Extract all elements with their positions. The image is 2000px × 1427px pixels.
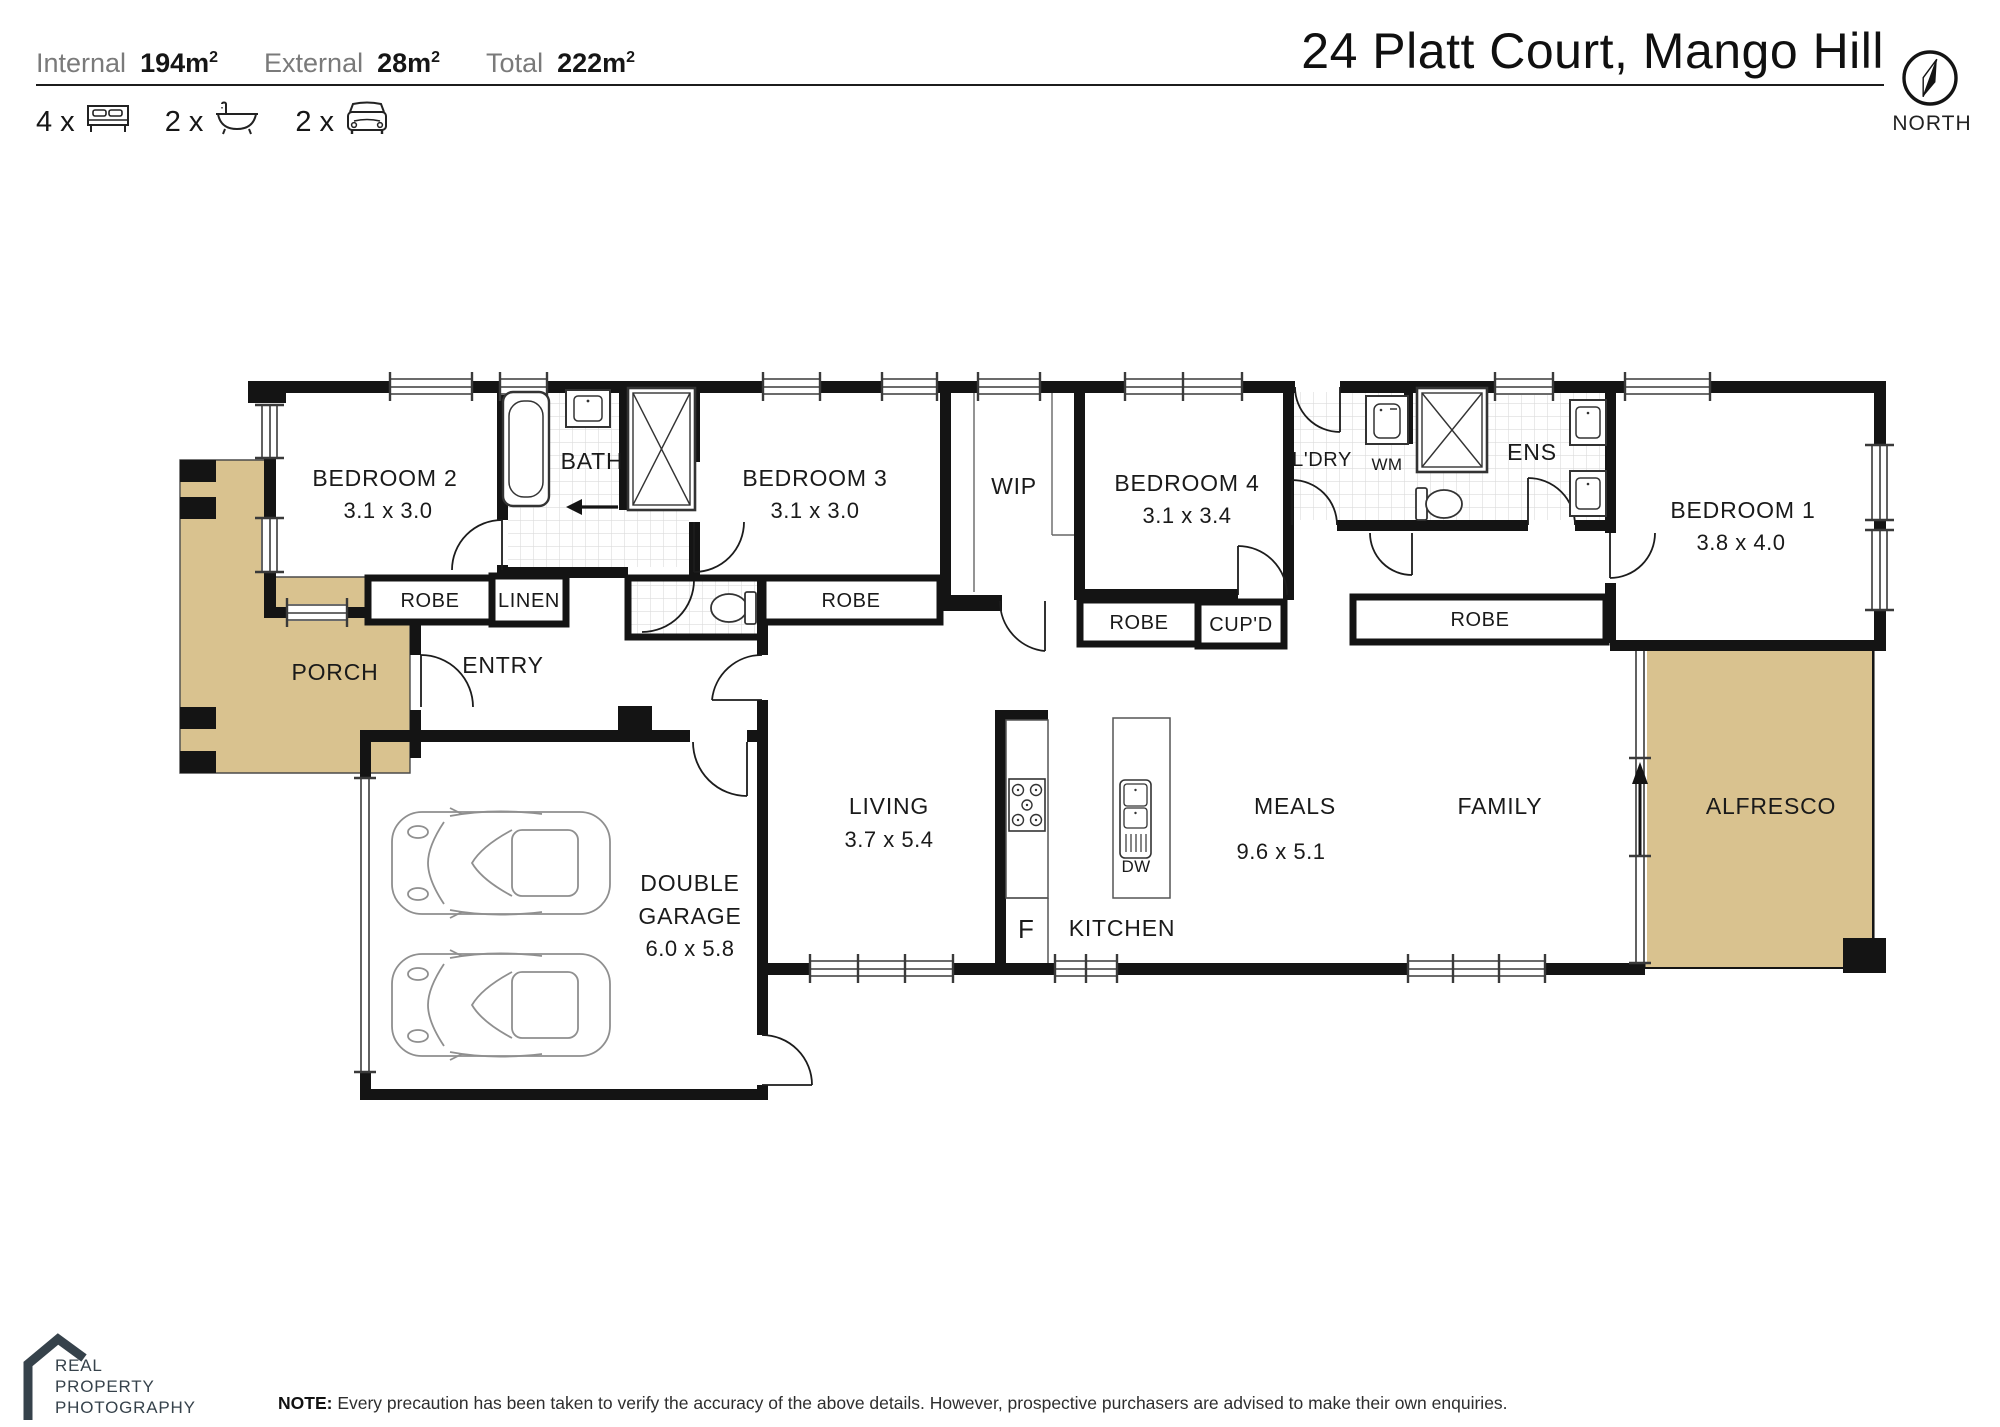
shower-icon [1417,388,1487,472]
sink-icon [1570,400,1606,445]
room-label-wip: WIP [991,473,1037,499]
room-label-family: FAMILY [1458,793,1543,819]
car-top-view [392,808,610,1060]
logo-line: PROPERTY [55,1376,196,1397]
storage-label-robe: ROBE [821,590,880,612]
bathtub-icon [503,392,549,506]
room-label-bedroom3: BEDROOM 3 [742,465,887,491]
room-dims-garage: 6.0 x 5.8 [646,936,735,961]
storage-label-robe: ROBE [1109,612,1168,634]
shower-icon [628,388,695,510]
window-icon [882,372,937,401]
dishwasher-icon [1120,780,1151,858]
disclaimer-note: NOTE: Every precaution has been taken to… [278,1393,1508,1414]
room-label-laundry: L'DRY [1292,449,1352,471]
room-label-entry: ENTRY [462,652,544,678]
room-label-bedroom1: BEDROOM 1 [1670,497,1815,523]
window-icon [763,372,820,401]
room-dims-bedroom1: 3.8 x 4.0 [1697,530,1786,555]
room-dims-bedroom4: 3.1 x 3.4 [1143,503,1232,528]
room-label-living: LIVING [849,793,929,819]
room-label-porch: PORCH [291,659,378,685]
note-text: Every precaution has been taken to verif… [332,1393,1507,1413]
note-label: NOTE: [278,1393,332,1413]
window-icon [978,372,1040,401]
window-icon [1625,372,1710,401]
appliance-label-wm: WM [1371,455,1402,474]
window-icon [1408,954,1545,983]
storage-label-cupd: CUP'D [1209,614,1273,636]
window-icon [1865,530,1894,610]
washing-machine-icon [1366,396,1408,444]
cooktop-icon [1009,779,1045,831]
window-icon [1865,445,1894,520]
toilet-icon [711,592,756,624]
room-label-bath: BATH [561,448,624,474]
room-label-bedroom2: BEDROOM 2 [312,465,457,491]
room-dims-meals: 9.6 x 5.1 [1237,839,1326,864]
window-icon [255,405,284,458]
room-label-kitchen: KITCHEN [1069,915,1176,941]
floor-plan: BEDROOM 2 3.1 x 3.0 BATH BEDROOM 3 3.1 x… [0,0,2000,1427]
window-icon [1055,954,1117,983]
window-icon [1125,372,1242,401]
storage-label-robe: ROBE [1450,609,1509,631]
room-dims-bedroom2: 3.1 x 3.0 [344,498,433,523]
room-dims-bedroom3: 3.1 x 3.0 [771,498,860,523]
appliance-label-fridge: F [1018,914,1034,944]
storage-label-robe: ROBE [400,590,459,612]
window-icon [810,954,953,983]
toilet-icon [1416,488,1462,520]
appliance-label-dw: DW [1121,857,1150,876]
sink-icon [566,390,610,427]
room-dims-living: 3.7 x 5.4 [845,827,934,852]
logo-line: REAL [55,1355,196,1376]
room-label-bedroom4: BEDROOM 4 [1114,470,1259,496]
room-label-meals: MEALS [1254,793,1336,819]
room-label-alfresco: ALFRESCO [1706,793,1836,819]
sink-icon [1570,471,1606,516]
rpp-logo-text: REAL PROPERTY PHOTOGRAPHY [55,1355,196,1418]
room-label-garage-1: DOUBLE [640,870,739,896]
room-label-garage-2: GARAGE [638,903,741,929]
logo-line: PHOTOGRAPHY [55,1397,196,1418]
storage-label-linen: LINEN [498,590,560,612]
window-icon [390,372,472,401]
garage-door [354,778,376,1072]
room-label-ens: ENS [1507,439,1557,465]
